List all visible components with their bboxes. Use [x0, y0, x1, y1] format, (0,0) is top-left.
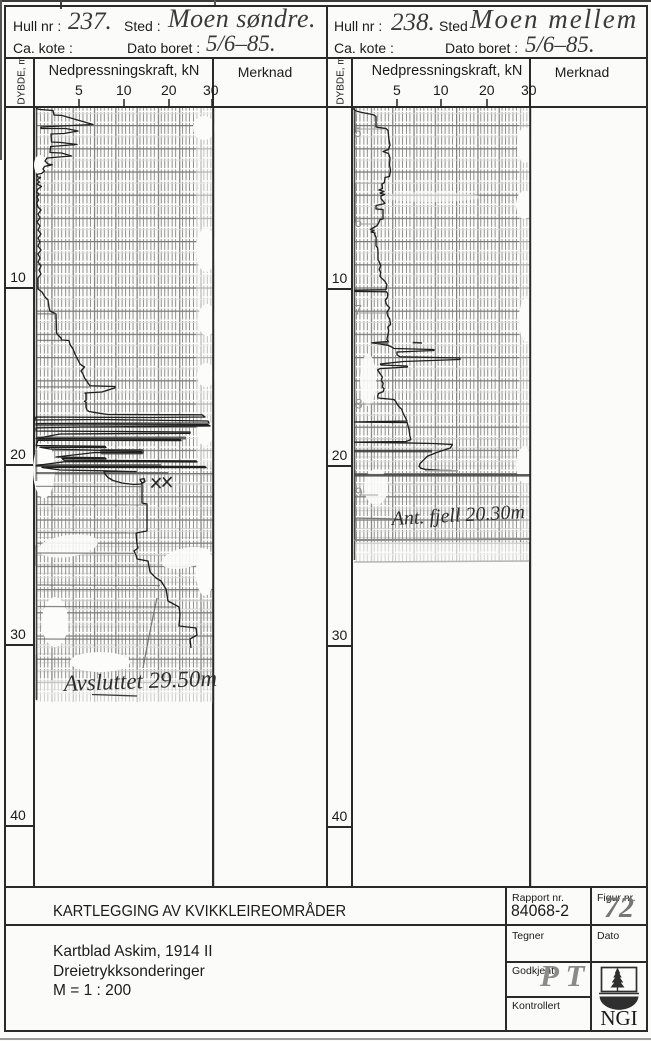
svg-text:NGI: NGI — [600, 1006, 637, 1030]
svg-text:7: 7 — [355, 303, 363, 318]
svg-text:9: 9 — [355, 485, 363, 500]
